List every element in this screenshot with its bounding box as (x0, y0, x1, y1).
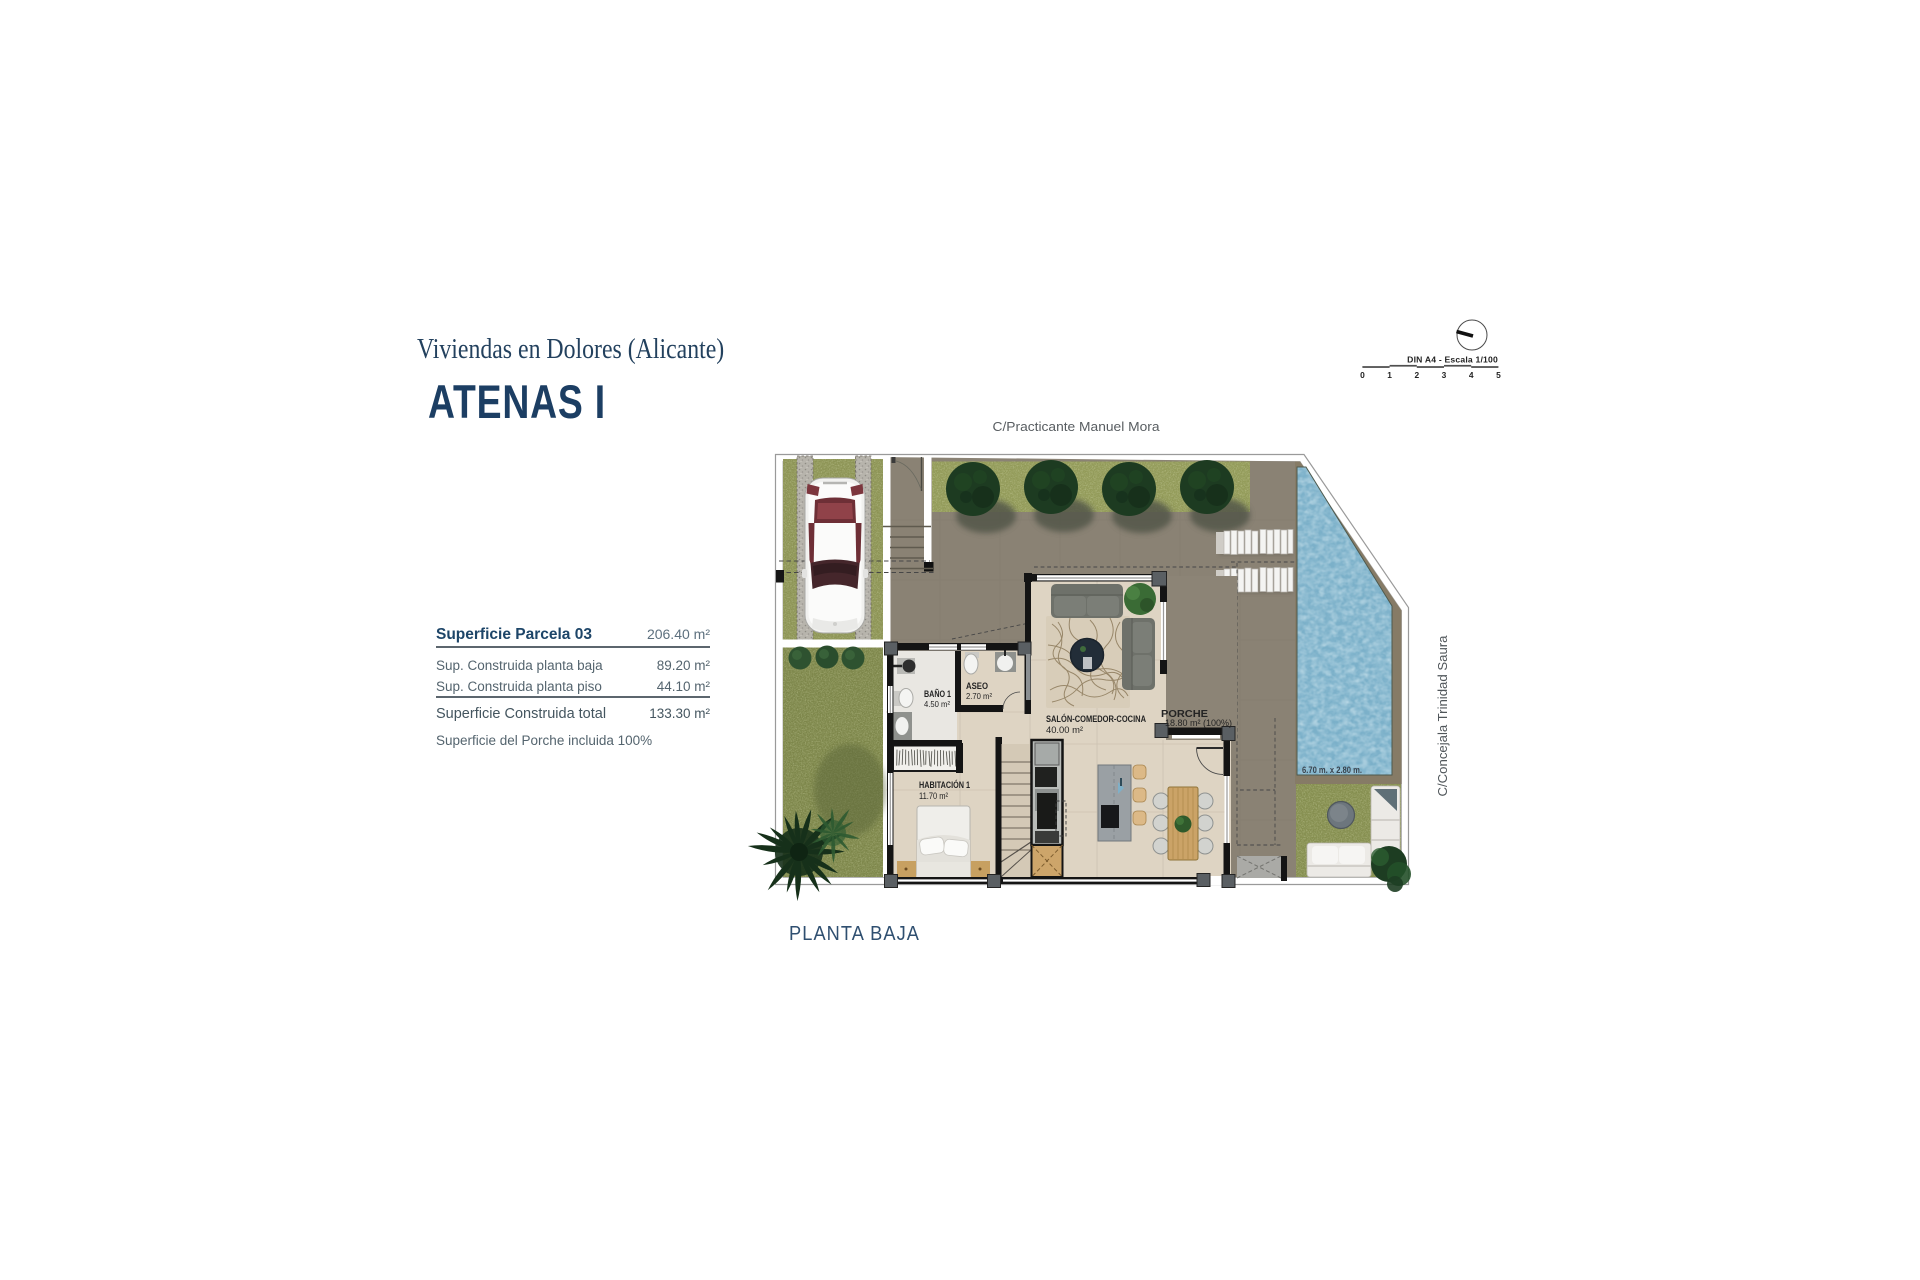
svg-text:HABITACIÓN 1: HABITACIÓN 1 (919, 779, 970, 790)
svg-text:4: 4 (1469, 370, 1474, 380)
svg-text:1: 1 (1387, 370, 1392, 380)
svg-text:4.50 m²: 4.50 m² (924, 699, 950, 709)
svg-text:ASEO: ASEO (966, 681, 988, 691)
svg-text:5: 5 (1496, 370, 1501, 380)
svg-text:C/Practicante Manuel Mora: C/Practicante Manuel Mora (993, 419, 1161, 434)
svg-text:40.00 m²: 40.00 m² (1046, 724, 1083, 735)
svg-text:BAÑO 1: BAÑO 1 (924, 689, 951, 699)
svg-text:0: 0 (1360, 370, 1365, 380)
svg-text:6.70 m. x 2.80 m.: 6.70 m. x 2.80 m. (1302, 764, 1362, 775)
svg-text:DIN A4 - Escala 1/100: DIN A4 - Escala 1/100 (1407, 355, 1498, 365)
svg-text:11.70 m²: 11.70 m² (919, 791, 948, 801)
svg-text:C/Concejala Trinidad Saura: C/Concejala Trinidad Saura (1435, 635, 1450, 797)
svg-text:2.70 m²: 2.70 m² (966, 691, 992, 701)
svg-text:2: 2 (1414, 370, 1419, 380)
svg-text:3: 3 (1442, 370, 1447, 380)
svg-text:18.80 m² (100%): 18.80 m² (100%) (1165, 718, 1232, 728)
